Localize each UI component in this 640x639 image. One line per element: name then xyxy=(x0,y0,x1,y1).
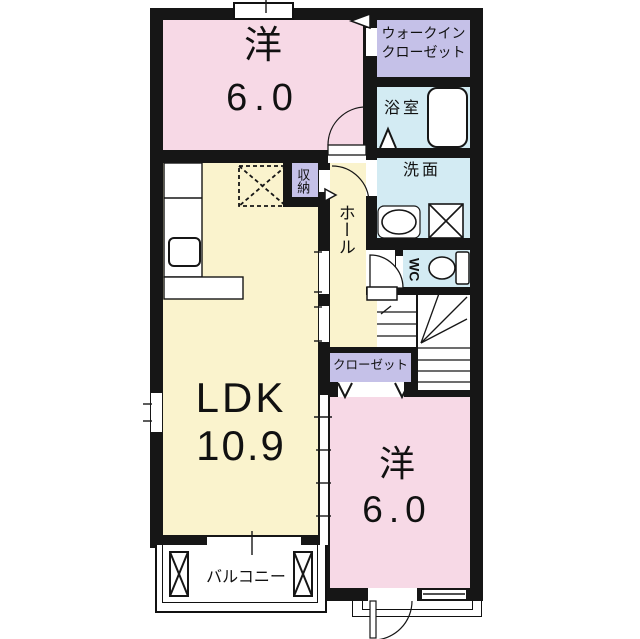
bathroom-label: 浴室 xyxy=(377,100,429,118)
bedroom-top-size: 6.0 xyxy=(203,78,323,120)
ldk-label: LDK xyxy=(180,375,302,421)
storage-opening xyxy=(319,170,330,192)
washroom-label: 洗面 xyxy=(390,162,454,180)
bedroom-bottom-window xyxy=(422,590,466,599)
storage-label: 収納 xyxy=(295,165,309,197)
bedroom-top-window xyxy=(233,2,294,20)
walkin-closet-label: ウォークイン クローゼット xyxy=(378,24,469,62)
room-ldk xyxy=(163,163,318,535)
ldk-hall-glass-lower xyxy=(319,306,329,342)
balcony-label: バルコニー xyxy=(196,569,296,587)
bedroom-bottom-label: 洋 xyxy=(367,444,427,484)
bedroom-top-label: 洋 xyxy=(233,26,293,68)
floorplan-canvas: 洋 6.0 ウォークイン クローゼット 浴室 洗面 WC ホール 収納 クローゼ… xyxy=(0,0,640,639)
ldk-hall-glass-upper xyxy=(319,251,329,294)
stairs-left-column xyxy=(377,295,416,347)
bedroom-bottom-size: 6.0 xyxy=(352,490,442,531)
closet-door-strip xyxy=(338,382,404,397)
walkin-closet-opening xyxy=(366,28,377,56)
walkin-closet-line1: ウォークイン xyxy=(378,24,469,43)
toilet-label: WC xyxy=(406,252,421,288)
toilet-door-opening xyxy=(396,256,403,286)
ldk-west-window xyxy=(151,393,162,432)
ldk-size: 10.9 xyxy=(178,423,304,469)
closet-label: クローゼット xyxy=(331,359,410,373)
porch-inner-step xyxy=(362,601,473,610)
toilet-door-area xyxy=(366,250,395,287)
room-hall-lower xyxy=(366,295,377,347)
washroom-door-opening xyxy=(366,160,377,196)
walkin-closet-line2: クローゼット xyxy=(378,43,469,62)
stairs-right-column xyxy=(418,295,470,390)
ldk-bedroom-slider xyxy=(320,395,328,545)
hall-label: ホール xyxy=(335,184,354,274)
entrance-opening xyxy=(368,588,417,601)
